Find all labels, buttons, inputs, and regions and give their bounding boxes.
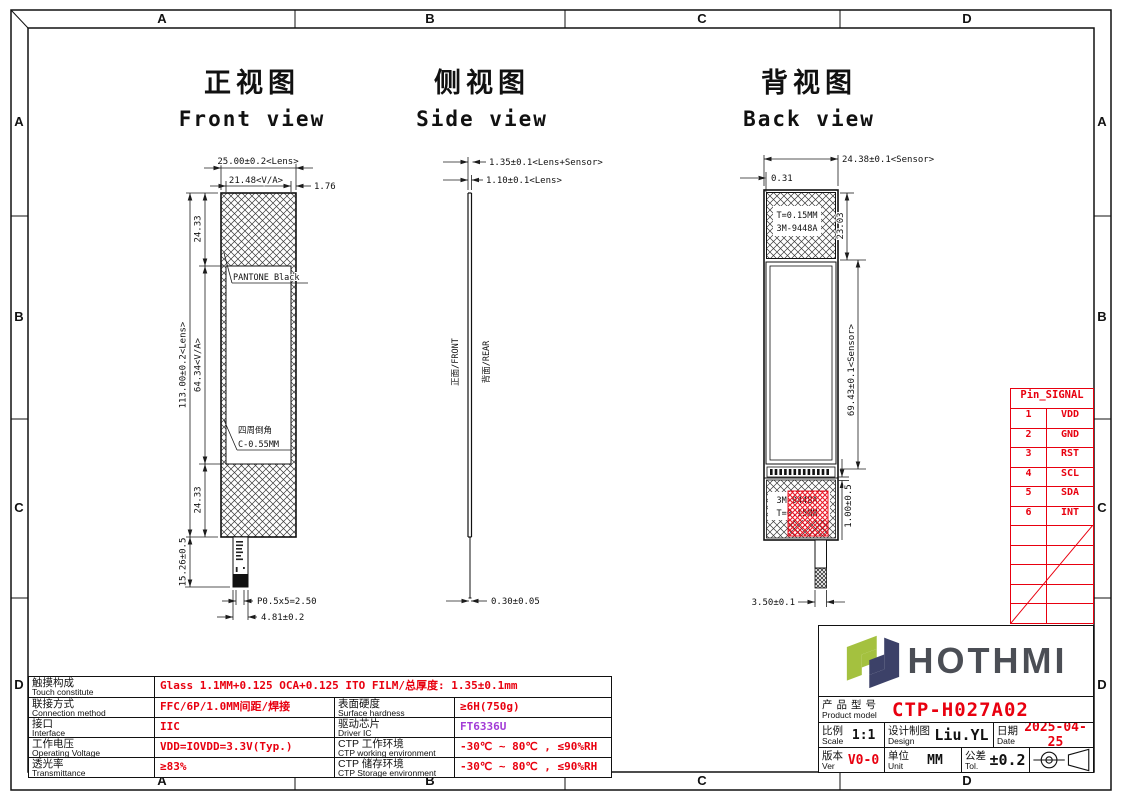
- spec-row-connection: 联接方式 Connection method FFC/6P/1.0MM间距/焊接…: [29, 697, 611, 717]
- dim-back-tape-height: 23.03: [836, 212, 846, 239]
- spec-row-transmittance: 透光率 Transmittance ≥83% CTP 储存环境 CTP Stor…: [29, 757, 611, 777]
- pin-signal: GND: [1047, 429, 1093, 448]
- spec-value: IIC: [154, 718, 334, 737]
- tolerance-cell: 公差Tol. ±0.2: [961, 748, 1029, 772]
- zone-right-d: D: [1097, 677, 1106, 692]
- hothmi-logo-icon: [845, 633, 901, 689]
- zone-left-b: B: [14, 309, 23, 324]
- label-pantone-black: PANTONE Black: [233, 273, 300, 283]
- spec-table: 触摸构成 Touch constitute Glass 1.1MM+0.125 …: [28, 676, 612, 778]
- zone-top-a: A: [157, 11, 167, 26]
- spec-value: FFC/6P/1.0MM间距/焊接: [154, 698, 334, 717]
- front-view-title-en: Front view: [179, 107, 325, 131]
- dim-front-va-width: 21.48<V/A>: [229, 176, 284, 186]
- spec-row-voltage: 工作电压 Operating Voltage VDD=IOVDD=3.3V(Ty…: [29, 737, 611, 757]
- dim-front-tail-height: 15.26±0.5: [179, 538, 189, 587]
- dim-front-lens-height: 113.00±0.2<Lens>: [179, 321, 189, 408]
- red-tape-zone: [788, 491, 828, 536]
- title-block: HOTHMI 产品型号 Product model CTP-H027A02 比例…: [818, 625, 1094, 773]
- design-value: Liu.YL: [930, 726, 993, 744]
- back-tape-thickness: T=0.15MM: [777, 211, 818, 221]
- design-cell: 设计制图Design Liu.YL: [884, 723, 993, 747]
- spec-row-touch: 触摸构成 Touch constitute Glass 1.1MM+0.125 …: [29, 677, 611, 697]
- spec-value: -30℃ ~ 80℃ , ≤90%RH: [454, 758, 611, 777]
- zone-left-c: C: [14, 500, 24, 515]
- spec-label: 驱动芯片 Driver IC: [334, 718, 454, 737]
- unit-value: MM: [909, 753, 961, 768]
- dim-front-va-height: 64.34<V/A>: [194, 337, 204, 392]
- pin-number: 4: [1011, 468, 1047, 487]
- pin-row-3: 3 RST: [1011, 447, 1093, 467]
- view-titles: 正视图 Front view 侧视图 Side view 背视图 Back vi…: [179, 68, 875, 131]
- zone-top-d: D: [962, 11, 971, 26]
- label-side-front-face: 正面/FRONT: [451, 338, 461, 386]
- pin-signal-table: Pin_SIGNAL 1 VDD 2 GND 3 RST 4 SCL 5 SDA…: [1010, 388, 1094, 624]
- zone-right-b: B: [1097, 309, 1106, 324]
- product-model-row: 产品型号 Product model CTP-H027A02: [819, 697, 1093, 723]
- back-view-title-zh: 背视图: [761, 68, 857, 98]
- pin-signal: RST: [1047, 448, 1093, 467]
- logo: HOTHMI: [819, 626, 1093, 697]
- back-view-title-en: Back view: [743, 107, 875, 131]
- pin-row-5: 5 SDA: [1011, 486, 1093, 506]
- pin-row-6: 6 INT: [1011, 506, 1093, 526]
- pin-table-diagonal: [1011, 525, 1093, 623]
- product-model-label: 产品型号 Product model: [819, 700, 880, 719]
- back-tape-model: 3M-9448A: [777, 224, 818, 234]
- pin-signal: SDA: [1047, 487, 1093, 506]
- brand-wordmark: HOTHMI: [908, 640, 1068, 682]
- zone-right-a: A: [1097, 114, 1107, 129]
- pin-row-1: 1 VDD: [1011, 408, 1093, 428]
- pin-signal: VDD: [1047, 409, 1093, 428]
- dim-side-total-thickness: 1.35±0.1<Lens+Sensor>: [489, 158, 603, 168]
- dim-side-ffc-thickness: 0.30±0.05: [491, 597, 540, 607]
- scale-cell: 比例Scale 1:1: [819, 723, 884, 747]
- version-value: V0-0: [843, 753, 884, 768]
- spec-label: 透光率 Transmittance: [29, 758, 154, 777]
- tolerance-value: ±0.2: [986, 751, 1029, 769]
- spec-label: 表面硬度 Surface hardness: [334, 698, 454, 717]
- drawing-sheet: A B C D A B C D A B C D A B C D 正视图 Fron…: [0, 0, 1122, 800]
- pin-signal: SCL: [1047, 468, 1093, 487]
- spec-label: CTP 储存环境 CTP Storage environment: [334, 758, 454, 777]
- side-view-dimensions: [443, 157, 487, 601]
- label-chamfer-zh: 四周倒角: [238, 425, 272, 436]
- dim-front-pin-pitch: P0.5x5=2.50: [257, 597, 317, 607]
- spec-label: 联接方式 Connection method: [29, 698, 154, 717]
- version-unit-tol-row: 版本Ver V0-0 单位Unit MM 公差Tol. ±0.2: [819, 748, 1093, 772]
- spec-label: 触摸构成 Touch constitute: [29, 677, 154, 697]
- spec-value: ≥6H(750g): [454, 698, 611, 717]
- ffc-connector-tip: [234, 574, 248, 587]
- side-view-drawing: [468, 193, 472, 598]
- dim-front-tail-width: 4.81±0.2: [261, 613, 304, 623]
- date-value: 2025-04-25: [1018, 723, 1093, 747]
- unit-cell: 单位Unit MM: [884, 748, 961, 772]
- scale-value: 1:1: [843, 728, 884, 743]
- date-cell: 日期Date 2025-04-25: [993, 723, 1093, 747]
- dim-front-top-band: 24.33: [194, 215, 204, 242]
- projection-symbol-cell: [1029, 748, 1093, 772]
- dim-front-lens-width: 25.00±0.2<Lens>: [217, 157, 299, 167]
- dim-back-sensor-height: 69.43±0.1<Sensor>: [847, 323, 857, 416]
- zone-bottom-d: D: [962, 773, 971, 788]
- zone-left-d: D: [14, 677, 23, 692]
- pin-signal: INT: [1047, 507, 1093, 526]
- dim-back-edge: 0.31: [771, 174, 793, 184]
- spec-label: 工作电压 Operating Voltage: [29, 738, 154, 757]
- third-angle-projection-icon: [1033, 748, 1091, 772]
- zone-bottom-c: C: [697, 773, 707, 788]
- scale-design-date-row: 比例Scale 1:1 设计制图Design Liu.YL 日期Date 202…: [819, 723, 1093, 748]
- dim-back-sensor-width: 24.38±0.1<Sensor>: [842, 155, 935, 165]
- spec-label: 接口 Interface: [29, 718, 154, 737]
- product-model-value: CTP-H027A02: [892, 699, 1029, 721]
- dim-front-bottom-band: 24.33: [194, 486, 204, 513]
- spec-value: Glass 1.1MM+0.125 OCA+0.125 ITO FILM/总厚度…: [154, 677, 611, 697]
- back-view-drawing: T=0.15MM 3M-9448A 3M-9448A T=0.15MM: [764, 190, 838, 588]
- dim-back-gap: 1.00±0.5: [844, 484, 854, 527]
- spec-label: CTP 工作环境 CTP working environment: [334, 738, 454, 757]
- spec-value: VDD=IOVDD=3.3V(Typ.): [154, 738, 334, 757]
- pin-table-header: Pin_SIGNAL: [1011, 389, 1093, 408]
- side-view-title-en: Side view: [416, 107, 548, 131]
- dim-front-border-width: 1.76: [314, 182, 336, 192]
- back-ffc-tip: [815, 568, 827, 588]
- zone-top-c: C: [697, 11, 707, 26]
- version-cell: 版本Ver V0-0: [819, 748, 884, 772]
- pin-number: 5: [1011, 487, 1047, 506]
- front-view-drawing: [221, 193, 296, 587]
- spec-value-driver-ic: FT6336U: [454, 718, 611, 737]
- pin-number: 3: [1011, 448, 1047, 467]
- dim-back-tail-width: 3.50±0.1: [752, 598, 795, 608]
- pin-row-2: 2 GND: [1011, 428, 1093, 448]
- spec-value: ≥83%: [154, 758, 334, 777]
- spec-row-interface: 接口 Interface IIC 驱动芯片 Driver IC FT6336U: [29, 717, 611, 737]
- pin-row-4: 4 SCL: [1011, 467, 1093, 487]
- side-view-title-zh: 侧视图: [434, 68, 530, 98]
- label-side-rear-face: 背面/REAR: [481, 340, 492, 383]
- zone-top-b: B: [425, 11, 434, 26]
- pin-number: 1: [1011, 409, 1047, 428]
- dim-side-lens-thickness: 1.10±0.1<Lens>: [486, 176, 562, 186]
- front-view-title-zh: 正视图: [204, 68, 300, 98]
- pin-number: 2: [1011, 429, 1047, 448]
- side-view-dim-texts: 1.35±0.1<Lens+Sensor> 1.10±0.1<Lens> 0.3…: [451, 158, 603, 607]
- spec-value: -30℃ ~ 80℃ , ≤90%RH: [454, 738, 611, 757]
- zone-left-a: A: [14, 114, 24, 129]
- zone-right-c: C: [1097, 500, 1107, 515]
- pin-number: 6: [1011, 507, 1047, 526]
- label-chamfer-value: C-0.55MM: [238, 440, 279, 450]
